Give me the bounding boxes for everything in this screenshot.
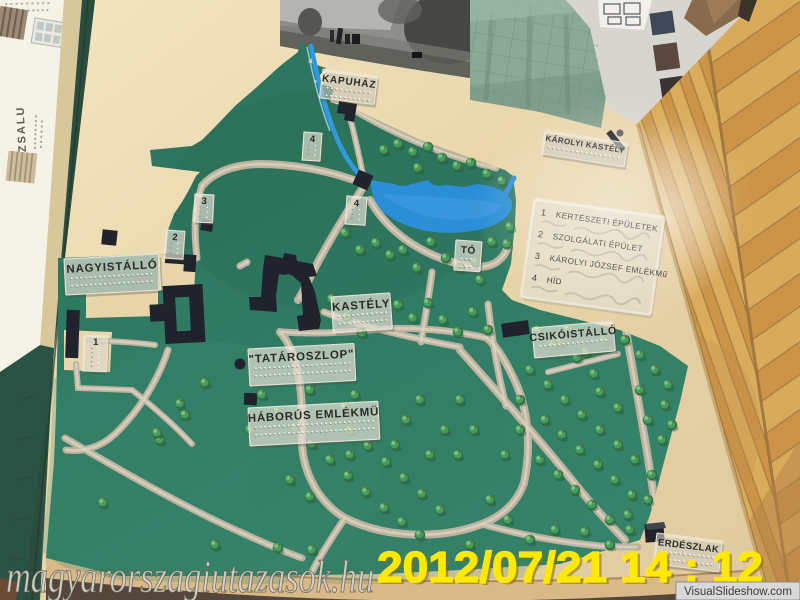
svg-text:VisualSlideshow.com: VisualSlideshow.com — [684, 586, 792, 598]
svg-text:2: 2 — [172, 232, 178, 243]
svg-text:magyarorszagiutazasok.hu: magyarorszagiutazasok.hu — [6, 551, 374, 600]
svg-text:ZSALU: ZSALU — [15, 105, 29, 152]
svg-text:TÓ: TÓ — [460, 243, 476, 257]
svg-text:3: 3 — [201, 196, 207, 207]
